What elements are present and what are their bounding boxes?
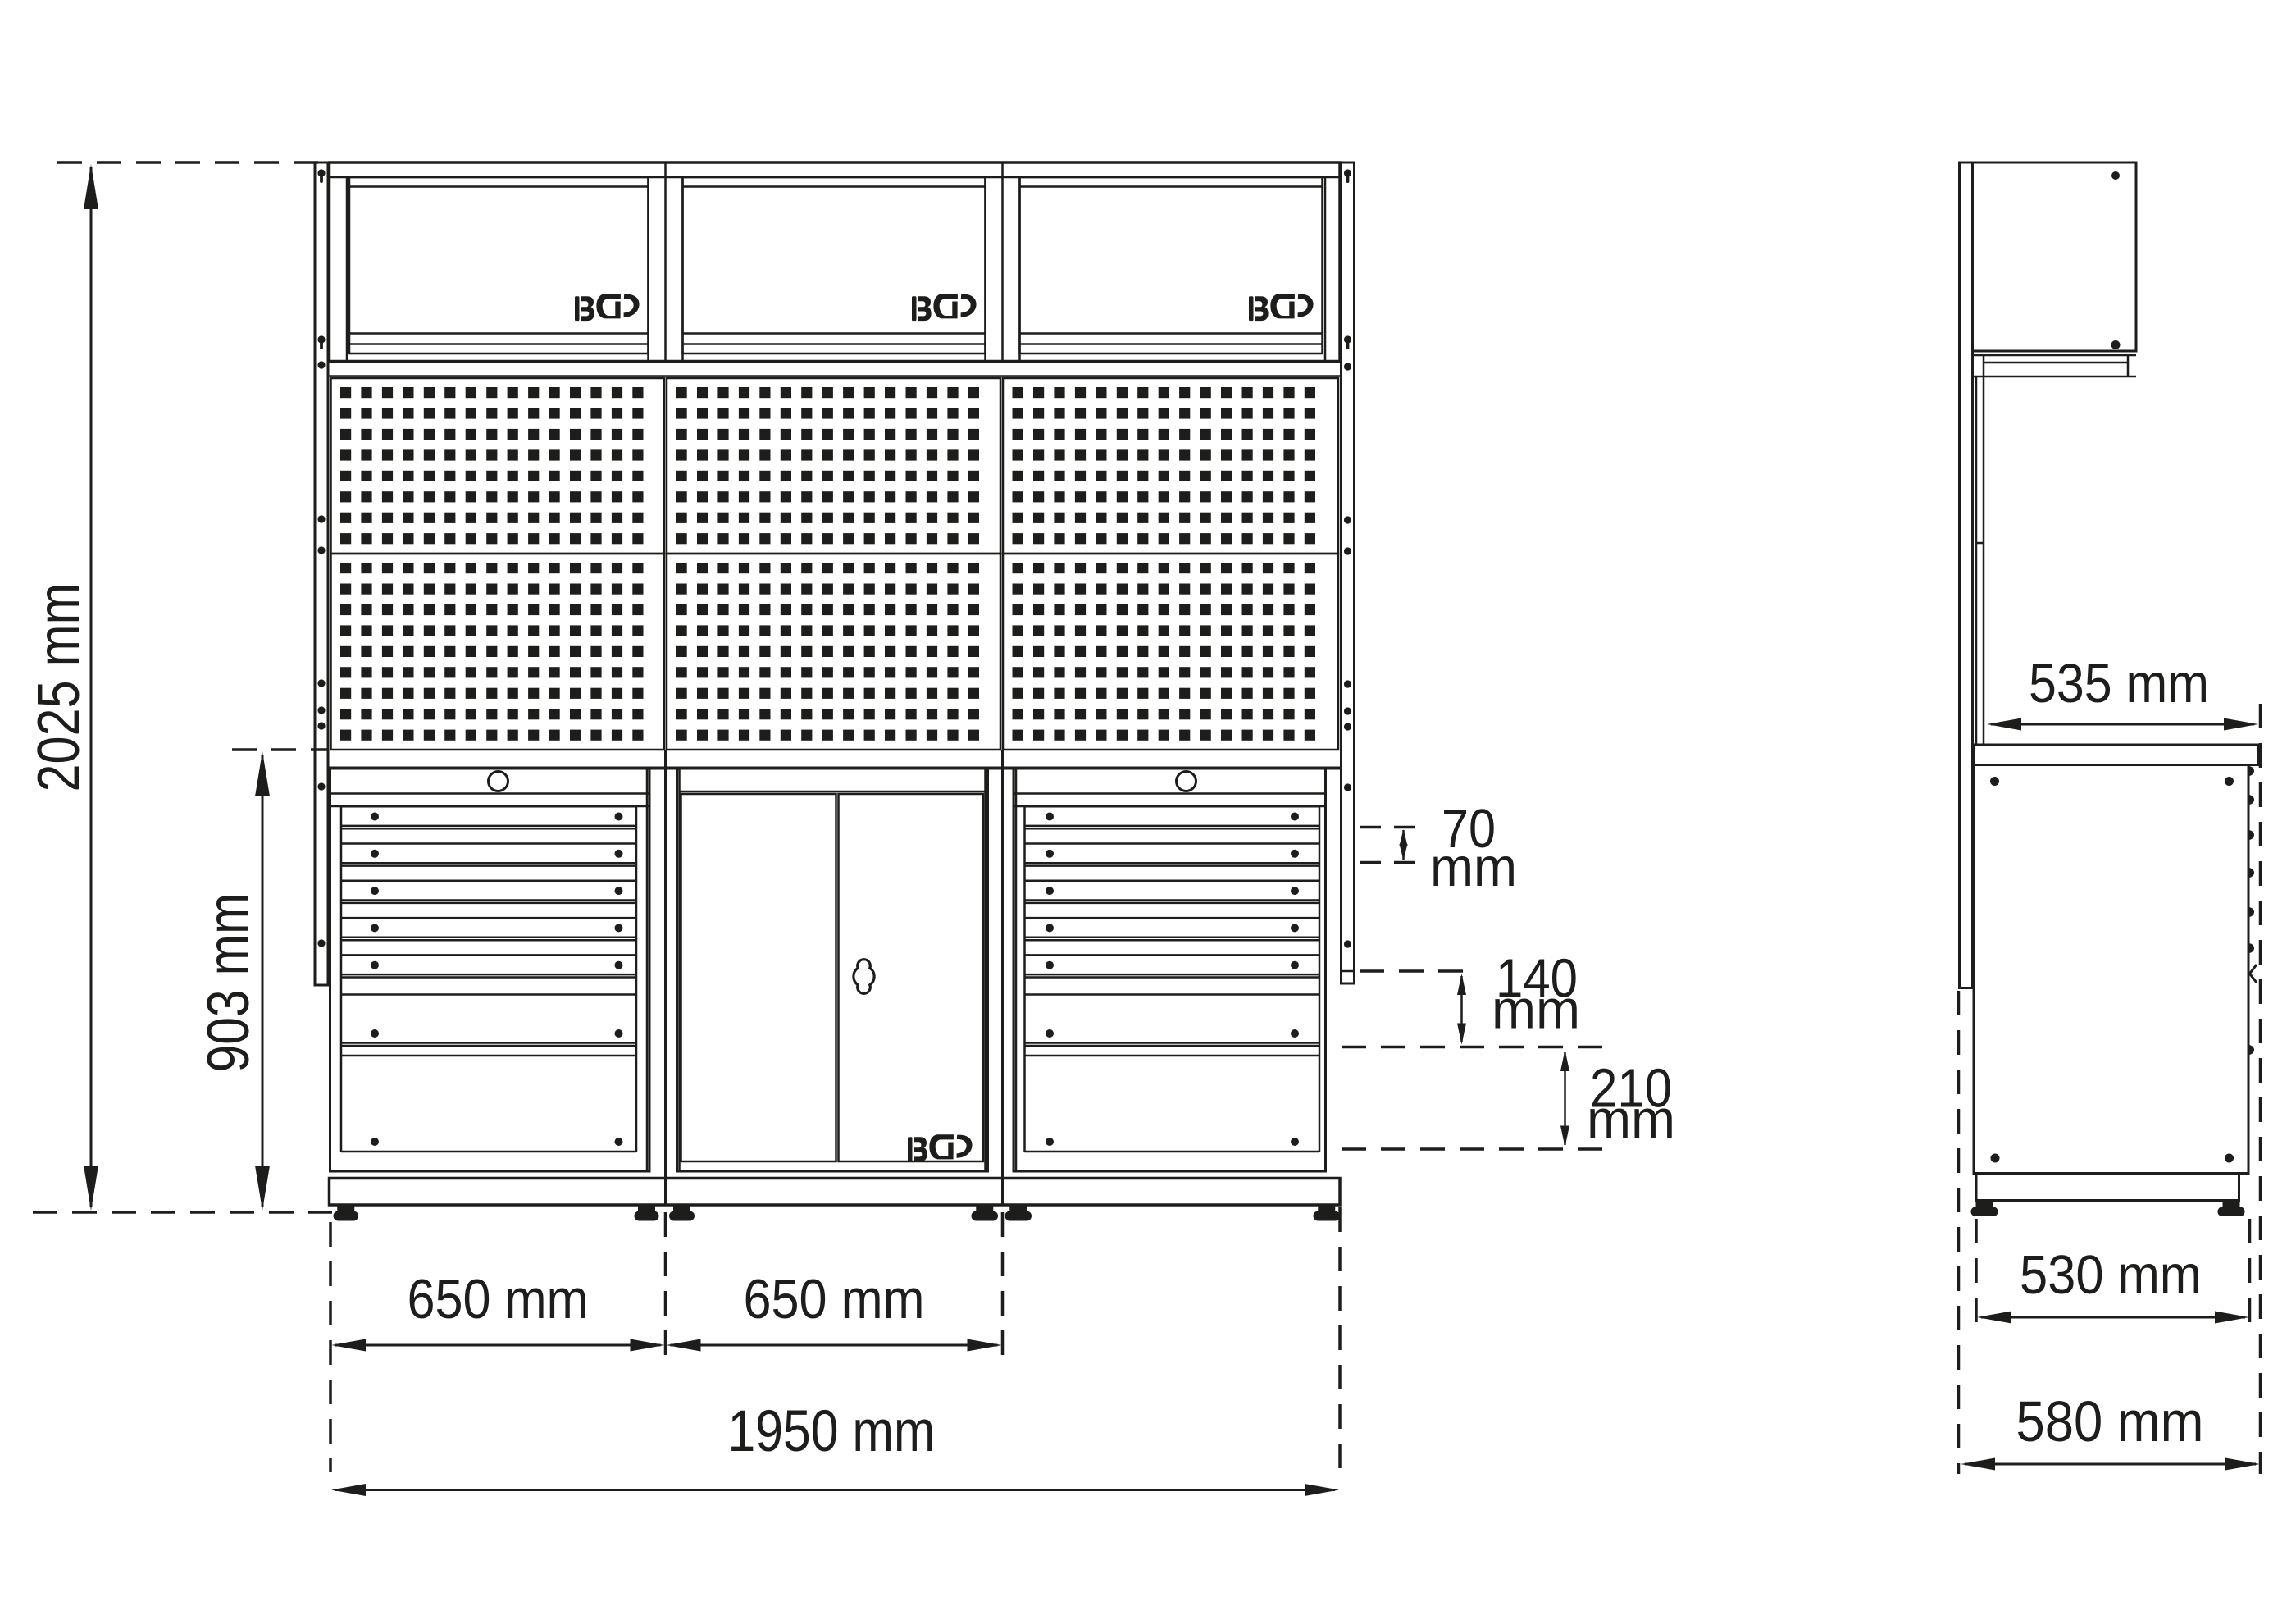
svg-text:mm: mm <box>1587 1089 1675 1151</box>
svg-text:mm: mm <box>1492 979 1580 1041</box>
svg-text:650 mm: 650 mm <box>744 1268 925 1330</box>
svg-text:mm: mm <box>1430 837 1517 898</box>
svg-text:1950 mm: 1950 mm <box>728 1399 936 1464</box>
svg-text:903 mm: 903 mm <box>196 893 262 1073</box>
svg-text:2025 mm: 2025 mm <box>26 583 92 792</box>
svg-text:650 mm: 650 mm <box>408 1268 589 1330</box>
svg-text:530 mm: 530 mm <box>2020 1244 2202 1306</box>
svg-text:535 mm: 535 mm <box>2029 653 2209 714</box>
svg-text:580 mm: 580 mm <box>2016 1389 2204 1453</box>
